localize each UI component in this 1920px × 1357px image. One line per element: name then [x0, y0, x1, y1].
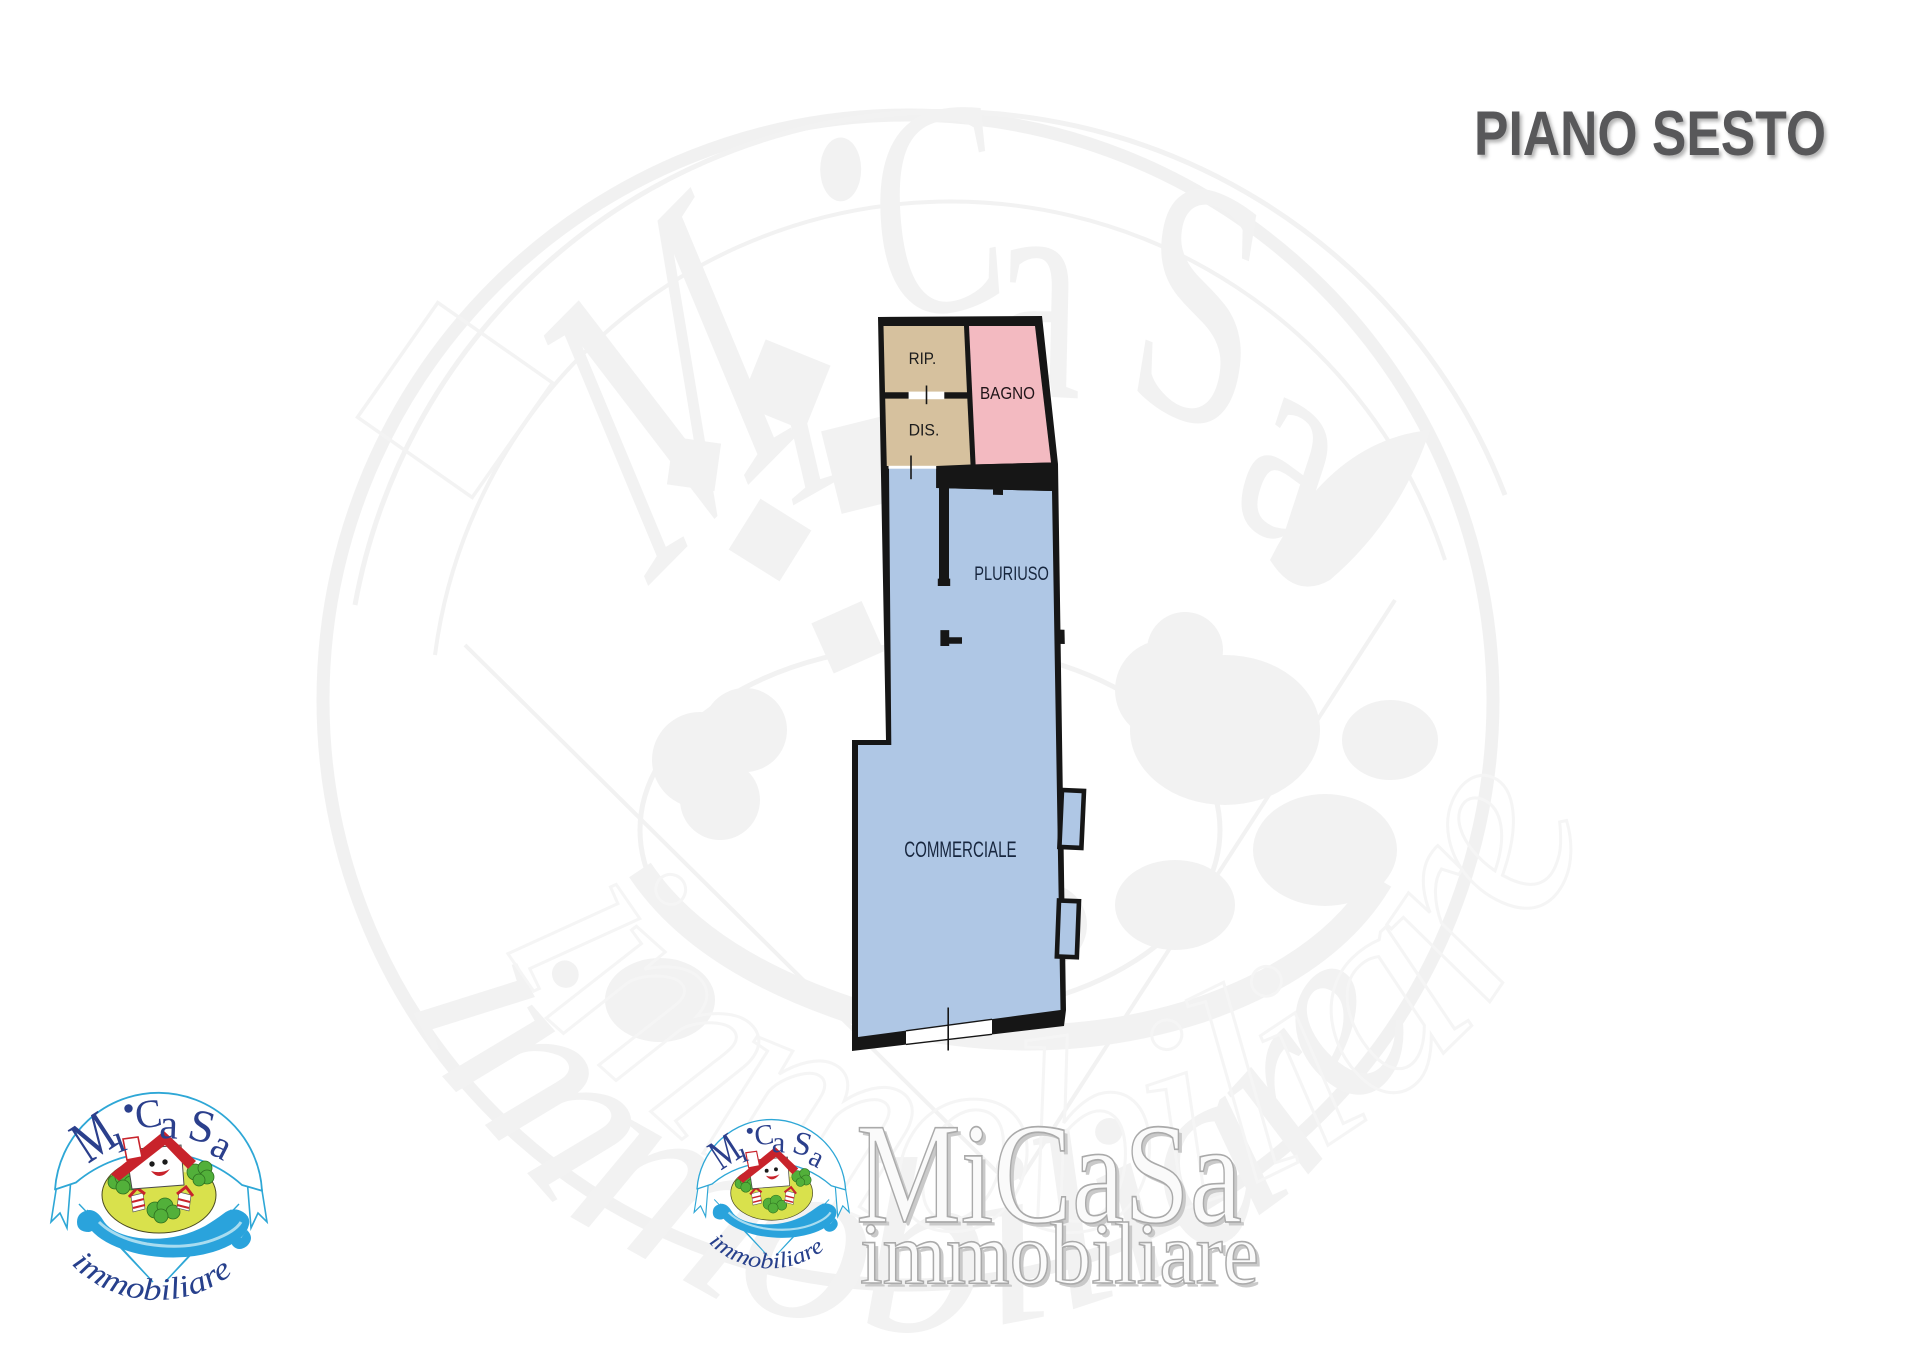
svg-text:PIANO SESTO: PIANO SESTO	[1474, 99, 1826, 169]
svg-text:immobiliare: immobiliare	[860, 1206, 1259, 1303]
svg-text:RIP.: RIP.	[909, 350, 937, 368]
svg-text:DIS.: DIS.	[909, 422, 940, 440]
svg-text:BAGNO: BAGNO	[980, 383, 1035, 403]
svg-text:PLURIUSO: PLURIUSO	[974, 564, 1049, 585]
svg-text:COMMERCIALE: COMMERCIALE	[904, 837, 1016, 862]
